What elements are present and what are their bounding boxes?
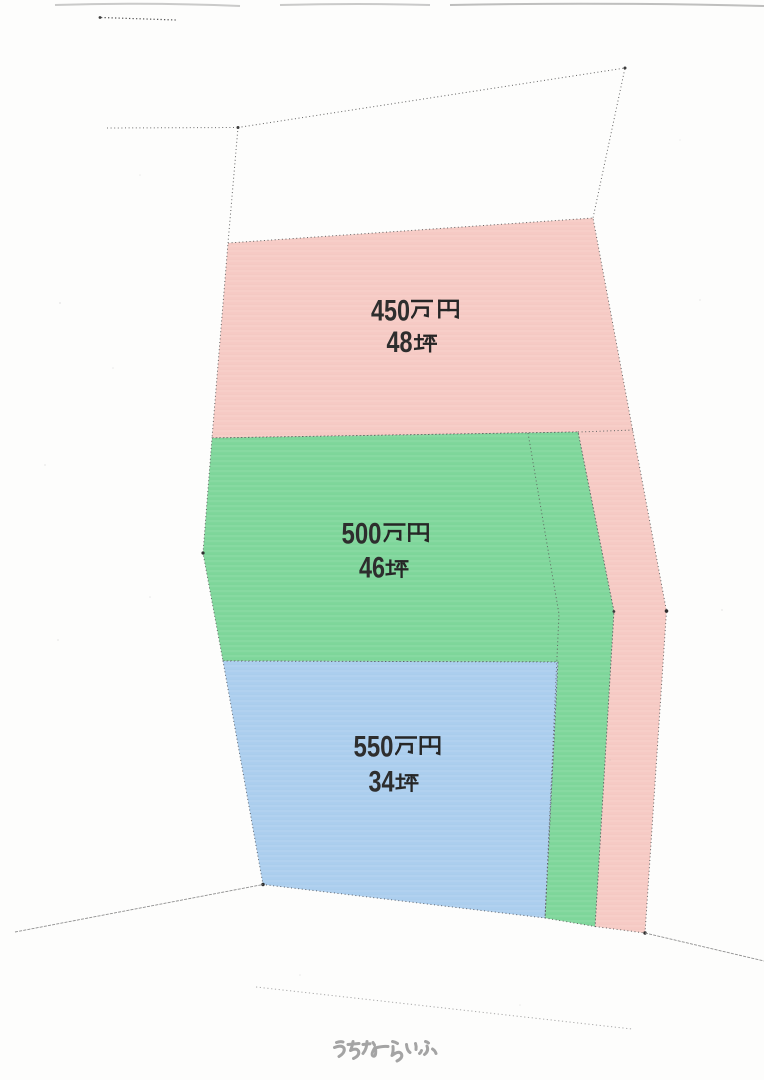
svg-text:450: 450 (371, 295, 410, 328)
svg-text:48: 48 (387, 326, 413, 359)
svg-text:34: 34 (369, 766, 395, 799)
svg-text:46: 46 (359, 552, 385, 585)
svg-text:550: 550 (354, 731, 394, 764)
svg-text:500: 500 (342, 518, 382, 551)
